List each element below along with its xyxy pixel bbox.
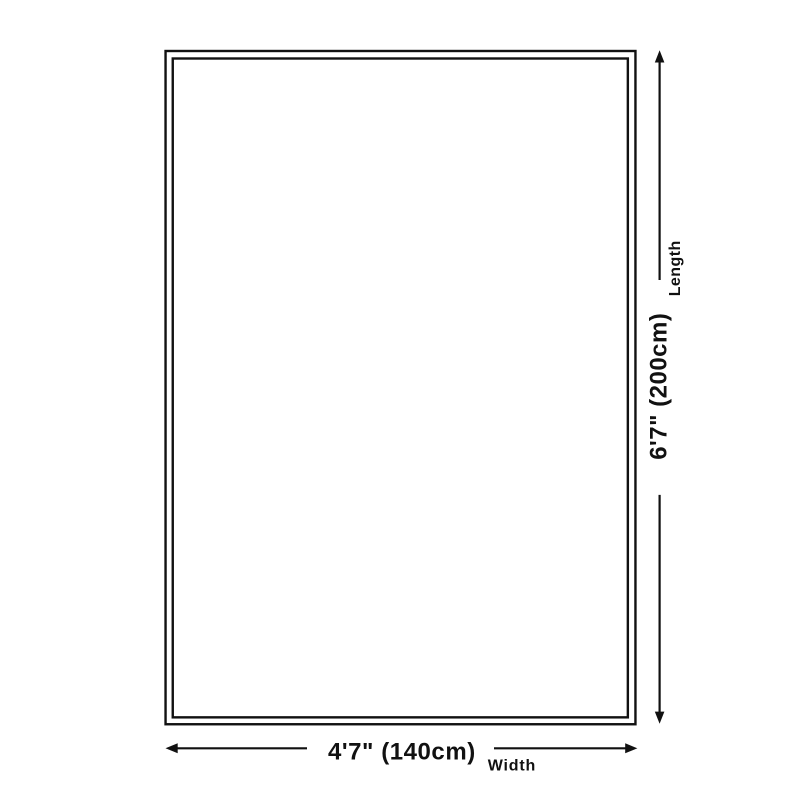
svg-text:Width: Width xyxy=(488,758,536,775)
svg-text:Length: Length xyxy=(667,240,684,296)
svg-text:6'7" (200cm): 6'7" (200cm) xyxy=(646,313,673,460)
svg-text:4'7" (140cm): 4'7" (140cm) xyxy=(328,738,476,765)
